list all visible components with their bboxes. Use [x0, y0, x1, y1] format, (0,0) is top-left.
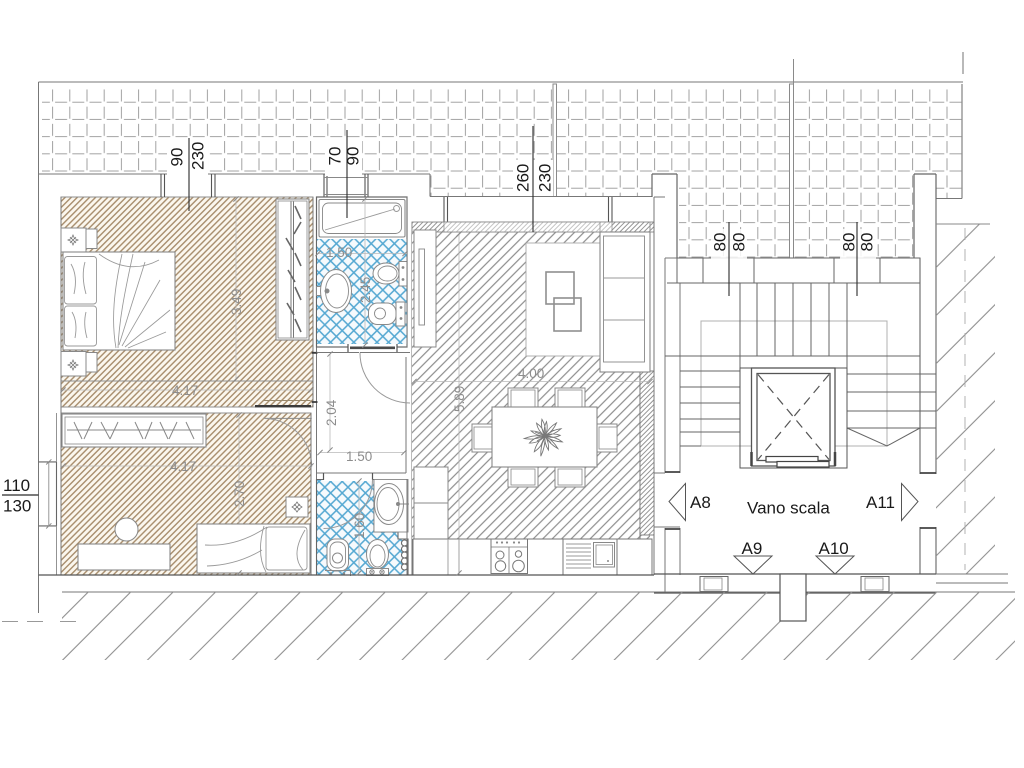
- svg-text:3.49: 3.49: [229, 289, 244, 315]
- svg-text:90: 90: [168, 148, 187, 167]
- svg-text:A11: A11: [866, 493, 895, 512]
- svg-text:80: 80: [858, 233, 877, 252]
- svg-text:A10: A10: [819, 539, 849, 558]
- svg-text:80: 80: [840, 233, 859, 252]
- svg-text:4.00: 4.00: [518, 366, 544, 381]
- svg-text:1.50: 1.50: [346, 449, 372, 464]
- svg-text:A9: A9: [742, 539, 763, 558]
- svg-text:80: 80: [711, 233, 730, 252]
- svg-text:2.45: 2.45: [358, 277, 373, 303]
- svg-text:1.60: 1.60: [352, 513, 367, 539]
- svg-text:A8: A8: [690, 493, 711, 512]
- svg-text:70: 70: [326, 147, 345, 166]
- svg-text:Vano scala: Vano scala: [747, 499, 830, 518]
- svg-text:1.50: 1.50: [326, 245, 352, 260]
- svg-text:230: 230: [536, 164, 555, 192]
- svg-text:260: 260: [514, 164, 533, 192]
- svg-text:5.89: 5.89: [452, 386, 467, 412]
- svg-text:2.70: 2.70: [232, 481, 247, 507]
- svg-text:4.17: 4.17: [170, 459, 196, 474]
- svg-text:80: 80: [730, 233, 749, 252]
- svg-text:230: 230: [189, 142, 208, 170]
- svg-text:110: 110: [3, 476, 30, 495]
- svg-text:90: 90: [344, 147, 363, 166]
- svg-text:2.04: 2.04: [324, 399, 339, 426]
- svg-text:4.17: 4.17: [172, 383, 198, 398]
- svg-text:130: 130: [3, 497, 31, 516]
